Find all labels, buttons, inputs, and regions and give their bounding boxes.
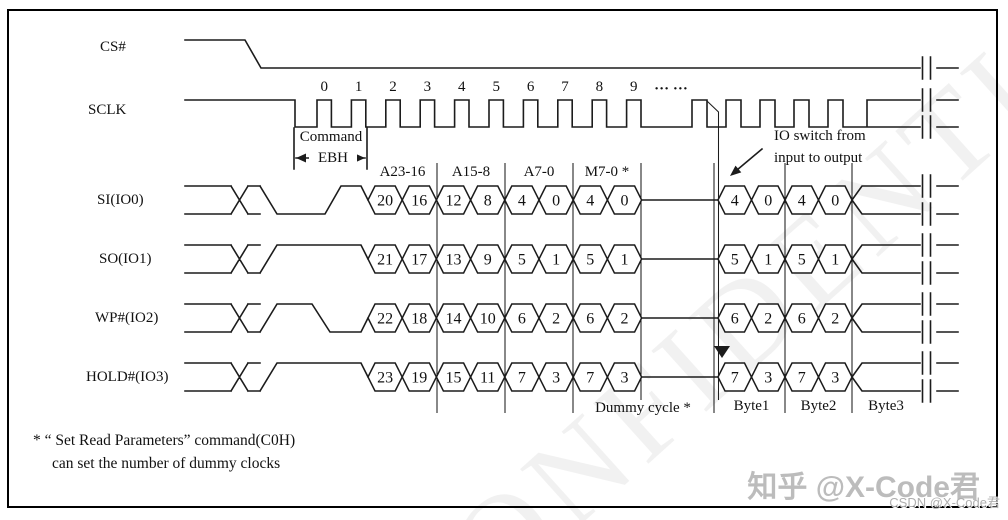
hex-value: 10 [480, 311, 496, 328]
byte3-label: Byte3 [852, 397, 920, 415]
clock-number: 4 [453, 78, 471, 96]
hex-value: 0 [621, 193, 629, 210]
signal-label-wp: WP#(IO2) [95, 309, 158, 327]
phase-label-a15-8: A15-8 [437, 163, 505, 181]
hex-value: 4 [518, 193, 526, 210]
hex-value: 5 [586, 252, 594, 269]
hex-value: 16 [411, 193, 427, 210]
hex-value: 21 [377, 252, 393, 269]
hex-value: 6 [586, 311, 594, 328]
hex-value: 19 [411, 370, 427, 387]
output-start-marker [714, 346, 730, 358]
cs-waveform [185, 40, 920, 68]
hex-value: 1 [552, 252, 560, 269]
phase-label-a23-16: A23-16 [368, 163, 437, 181]
hex-value: 6 [731, 311, 739, 328]
signal-label-hold: HOLD#(IO3) [86, 368, 168, 386]
hex-value: 3 [621, 370, 629, 387]
hex-value: 7 [731, 370, 739, 387]
clock-number: 1 [350, 78, 368, 96]
clock-number: 0 [315, 78, 333, 96]
byte1-label: Byte1 [718, 397, 785, 415]
sclk-waveform [185, 100, 920, 127]
footnote-line1: * “ Set Read Parameters” command(C0H) [33, 432, 295, 450]
io-switch-marker-line [707, 101, 719, 400]
hex-value: 2 [764, 311, 772, 328]
footnote-line2: can set the number of dummy clocks [52, 455, 280, 473]
hex-value: 7 [586, 370, 594, 387]
signal-label-so: SO(IO1) [99, 250, 152, 268]
command-value: EBH [309, 149, 357, 167]
hex-value: 7 [518, 370, 526, 387]
clock-number: 5 [487, 78, 505, 96]
hex-value: 4 [731, 193, 739, 210]
hex-value: 23 [377, 370, 393, 387]
io-switch-arrow [730, 149, 762, 176]
hex-value: 1 [831, 252, 839, 269]
hex-value: 9 [484, 252, 492, 269]
signal-label-si: SI(IO0) [97, 191, 144, 209]
hex-value: 12 [446, 193, 462, 210]
hex-value: 3 [831, 370, 839, 387]
hex-value: 8 [484, 193, 492, 210]
hex-value: 0 [552, 193, 560, 210]
hex-value: 7 [798, 370, 806, 387]
clock-ellipsis: ··· ··· [640, 80, 702, 98]
hex-value: 6 [518, 311, 526, 328]
clock-number: 3 [418, 78, 436, 96]
hex-value: 5 [518, 252, 526, 269]
hex-value: 6 [798, 311, 806, 328]
clock-number: 8 [590, 78, 608, 96]
csdn-watermark: CSDN @X-Code君 [860, 492, 1000, 511]
hex-value: 2 [621, 311, 629, 328]
hex-value: 4 [586, 193, 594, 210]
io-switch-note-line1: IO switch from [774, 127, 866, 145]
timing-diagram-figure: CONFIDENTIAL 201612840404040211713951515… [0, 0, 1008, 520]
hex-value: 3 [552, 370, 560, 387]
hex-value: 15 [446, 370, 462, 387]
hex-value: 22 [377, 311, 393, 328]
hex-value: 13 [446, 252, 462, 269]
hex-value: 0 [831, 193, 839, 210]
hex-value: 5 [798, 252, 806, 269]
hex-value: 5 [731, 252, 739, 269]
signal-label-sclk: SCLK [88, 101, 126, 119]
hex-value: 4 [798, 193, 806, 210]
phase-label-m7-0: M7-0 * [573, 163, 641, 181]
hex-value: 11 [480, 370, 495, 387]
clock-number: 6 [522, 78, 540, 96]
command-label: Command [294, 128, 368, 146]
hex-value: 20 [377, 193, 393, 210]
hex-value: 1 [621, 252, 629, 269]
hex-value: 1 [764, 252, 772, 269]
data-hexagons: 2016128404040402117139515151512218141062… [368, 186, 852, 391]
hex-value: 0 [764, 193, 772, 210]
hex-value: 2 [552, 311, 560, 328]
phase-label-a7-0: A7-0 [505, 163, 573, 181]
hex-value: 17 [411, 252, 427, 269]
hex-value: 2 [831, 311, 839, 328]
io-switch-note-line2: input to output [774, 149, 862, 167]
hex-value: 14 [446, 311, 462, 328]
hex-value: 18 [411, 311, 427, 328]
hex-value: 3 [764, 370, 772, 387]
byte2-label: Byte2 [785, 397, 852, 415]
dummy-cycle-label: Dummy cycle * [575, 399, 711, 417]
clock-number: 7 [556, 78, 574, 96]
waveform-breaks [923, 57, 959, 402]
signal-label-cs: CS# [100, 38, 126, 56]
clock-number: 2 [384, 78, 402, 96]
